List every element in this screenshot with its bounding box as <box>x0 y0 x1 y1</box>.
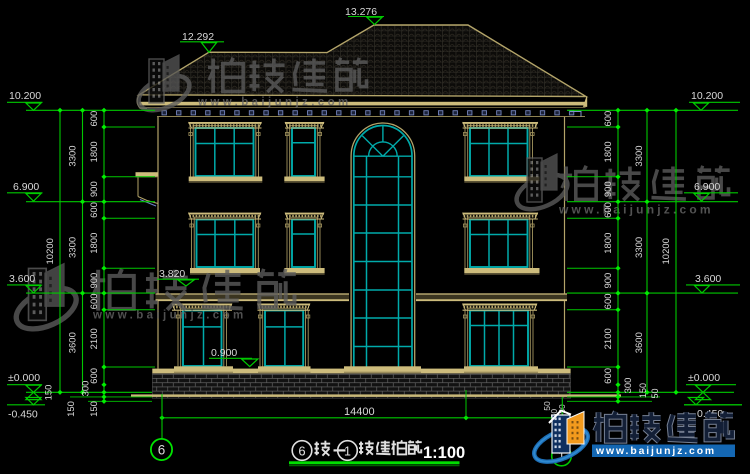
svg-text:150: 150 <box>638 383 648 398</box>
svg-text:150: 150 <box>66 401 77 417</box>
svg-text:-0.450: -0.450 <box>8 409 38 421</box>
svg-text:1800: 1800 <box>603 233 614 254</box>
svg-text:1: 1 <box>344 444 351 458</box>
svg-text:3300: 3300 <box>634 237 645 258</box>
svg-text:600: 600 <box>603 368 614 384</box>
svg-text:3.600: 3.600 <box>695 273 721 285</box>
svg-text:600: 600 <box>603 111 614 127</box>
svg-text:www.baijunjz.com: www.baijunjz.com <box>197 97 352 109</box>
svg-text:12.292: 12.292 <box>182 31 214 43</box>
svg-text:900: 900 <box>89 181 100 197</box>
svg-text:14400: 14400 <box>344 406 375 418</box>
svg-text:600: 600 <box>89 111 100 127</box>
svg-text:150: 150 <box>89 401 100 417</box>
svg-text:6: 6 <box>298 443 305 458</box>
svg-text:6.900: 6.900 <box>694 181 720 193</box>
svg-text:10200: 10200 <box>661 238 672 264</box>
svg-text:3600: 3600 <box>634 332 645 353</box>
svg-text:6.900: 6.900 <box>13 181 39 193</box>
svg-text:3600: 3600 <box>68 332 79 353</box>
svg-text:2100: 2100 <box>603 328 614 349</box>
svg-text:10.200: 10.200 <box>9 90 41 102</box>
svg-text:600: 600 <box>603 293 614 309</box>
svg-text:150: 150 <box>44 385 55 401</box>
svg-text:900: 900 <box>603 273 614 289</box>
svg-text:600: 600 <box>603 202 614 218</box>
svg-text:www.baijunjz.com: www.baijunjz.com <box>92 310 247 322</box>
svg-text:300: 300 <box>81 381 92 397</box>
svg-text:1800: 1800 <box>89 233 100 254</box>
svg-text:6: 6 <box>158 443 166 458</box>
svg-text:50: 50 <box>650 388 660 398</box>
svg-text:900: 900 <box>89 273 100 289</box>
svg-text:2100: 2100 <box>89 328 100 349</box>
svg-text:300: 300 <box>623 378 634 394</box>
svg-text:10.200: 10.200 <box>691 90 723 102</box>
svg-text:3300: 3300 <box>634 145 645 166</box>
svg-text:900: 900 <box>603 181 614 197</box>
svg-text:600: 600 <box>89 202 100 218</box>
svg-text:3.600: 3.600 <box>9 273 35 285</box>
svg-text:0.900: 0.900 <box>211 347 237 359</box>
svg-text:±0.000: ±0.000 <box>688 372 720 384</box>
svg-text:1800: 1800 <box>89 141 100 162</box>
svg-text:3300: 3300 <box>68 145 79 166</box>
svg-text:3.820: 3.820 <box>159 268 185 280</box>
svg-text:3300: 3300 <box>68 237 79 258</box>
svg-text:www.baijunjz.com: www.baijunjz.com <box>558 203 714 217</box>
svg-text:10200: 10200 <box>45 238 56 264</box>
svg-text:600: 600 <box>89 293 100 309</box>
svg-text:1:100: 1:100 <box>423 444 465 462</box>
svg-text:www.baijunjz.com: www.baijunjz.com <box>595 446 716 457</box>
svg-text:±0.000: ±0.000 <box>8 372 40 384</box>
svg-text:1800: 1800 <box>603 141 614 162</box>
